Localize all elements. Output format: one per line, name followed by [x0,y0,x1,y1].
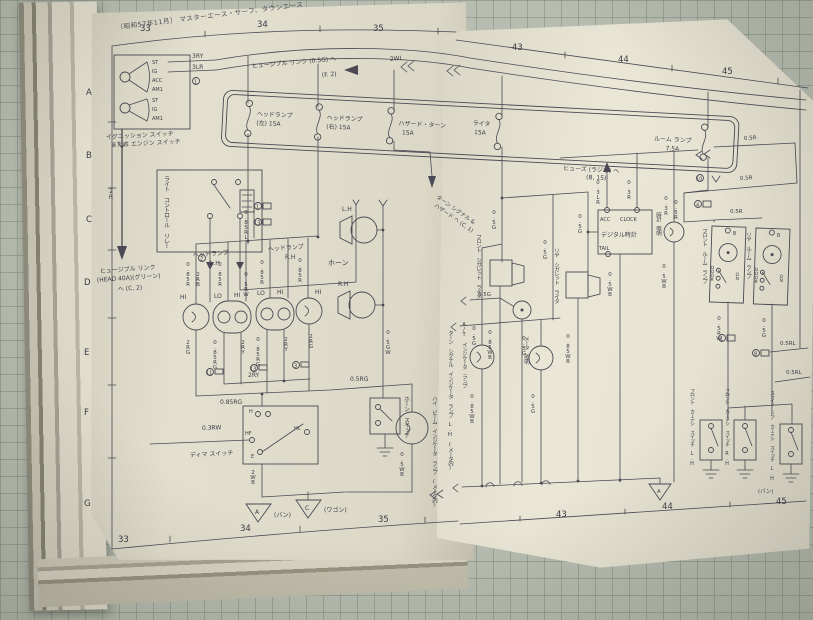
wire-label: 2WL [390,55,404,63]
headlamp-bulb-hi-2: HI [296,289,322,324]
dimmer-switch: H HF HL E 0.3RW ディマ スイッチ 2WB [150,394,318,497]
courtesy-switch-front-lh [700,420,722,478]
indicator-caption: 時計 照明 [655,211,662,238]
grid-col: 33 [140,24,151,34]
switch-position: ON [778,274,784,283]
bottom-bus-right: A [453,478,671,500]
at-indicator-lamp: 0.5G A/T インジケータ ランプ 0.85WB [461,244,502,485]
headlamp-lh-caption: ヘッドランプ [193,250,229,259]
switch-position: ON [734,272,740,281]
wire-label: 2RG [185,340,191,355]
room-lamp-feed: 0.5R 0.5R 0.5R 0.5R 10 4 [673,135,797,222]
wire-label: 0.85RG [255,337,261,367]
wire-label: 0.5RG [350,376,369,383]
lighter-caption: リヤ シガレット ライタ [553,248,560,304]
ground-note: (バン) [274,512,291,519]
wire-label: 0.85R [259,260,265,285]
wire-label: 0.85R [185,262,191,287]
grid-col: 33 [118,535,129,545]
headlamp-lh-caption: L.H [210,260,220,267]
horn-label: L.H [342,206,352,213]
terminal-label: B [733,231,737,237]
wire-label: 0.5WB [607,272,613,297]
wire-label: 0.5G [491,210,497,230]
courtesy-caption: フロント カーテシ スイッチ L.H [689,388,695,466]
fuse-rating: (右) 15A [326,122,352,131]
indicator-caption: A/T インジケータ ランプ [461,322,468,389]
terminal-label: IG [152,107,157,113]
fuse-rating: 15A [474,129,487,137]
terminal-label: IG [152,69,157,75]
grid-col: 34 [257,20,268,30]
horn-rh: R.H [338,281,384,319]
fuse-lighter: ライタ 15A [471,112,502,150]
top-bus: ヒュージブル リンク (0.5G) ヘ (F. 2) 2WL [216,48,806,110]
terminal-label: AM1 [152,116,163,122]
terminal-label: ST [152,98,159,104]
wire-label: 2RY [248,372,260,379]
wire-label: 0.3R [626,180,632,200]
grid-col: 43 [512,43,523,53]
wire-label: 0.85RG [212,340,218,370]
headlamp-rh-caption: ヘッドランプ [268,244,304,253]
grid-row: D [84,278,91,288]
grid-col: 45 [776,497,787,507]
clock-illumination-lamp: 0.3R 時計 照明 0.5WB [655,152,684,482]
switch-position: DOOR [709,265,715,282]
wire-label: 0.3RW [202,424,222,432]
right-edge-wires: 0.5RL 0.5RL 8 [753,90,811,382]
room-lamp-front: B DOOR ON [709,226,746,303]
wire-label: 2RY [240,340,246,355]
courtesy-switches: 0.5RW 0.5G 1 フロント カーテシ スイッチ L.H フロント カーテ… [689,302,802,495]
connector-number: 10 [696,177,702,183]
wire-label: 0.5G [471,326,477,346]
connector-number: 13 [254,221,260,227]
fuse-rating: (左) 15A [256,119,282,128]
bulb-label: HI [315,289,322,296]
wire-label: 0.3LR [595,180,601,205]
terminal-label: E [251,454,254,460]
wire-label: 0.85RL [243,210,249,240]
ground-letter: C [305,505,309,512]
grid-row: E [84,348,89,358]
turn-indicator-caption: ターン シグナル インジケータ ランプ L.H (メータ内) [447,330,454,470]
grid-col: 34 [240,524,251,534]
terminal-label: ST [152,60,159,66]
arrow-left [344,65,358,75]
cigarette-lighter-rear: 0.5G リヤ シガレット ライタ 0.85WB [502,192,600,480]
fuse-hazard-turn: ハザード・ターン 15A [386,107,447,146]
horn-switch: ホーン スイッチ [370,396,410,456]
headlamp-bulb-dual-1: LO HI [213,292,251,333]
note-fusible-link-ref: (F. 2) [322,71,337,79]
grid-col: 35 [378,515,389,525]
wire-label: 0.5G [521,336,527,356]
wire-label: 0.85WB [469,394,475,424]
indicator-caption: ハイ ビーム インジケータ ランプ (メータ内) [431,396,438,507]
ground-letter: A [657,489,661,495]
courtesy-switch-front-rh [734,420,756,478]
connector-number: 3 [294,364,297,370]
terminal-label: ACC [600,217,611,223]
lighter-caption: フロント シガレット ライタ [475,234,482,300]
clock-caption: デジタル時計 [601,231,637,239]
grid-ruler: 33 34 35 43 44 45 33 34 35 43 44 45 A B … [84,20,808,549]
courtesy-caption: スライド ドア カーテシ スイッチ L.H [769,390,775,481]
connector-chevrons [447,65,460,76]
wire-label: 0.3R [663,196,669,216]
wire-label: 0.85WB [487,330,493,360]
wire-label: 0.5R [673,200,679,220]
wire-label: 0.5WB [661,264,667,289]
connector-number: 1 [194,80,197,86]
bulb-label: LO [214,293,222,300]
wire-label: 3RY [192,53,204,60]
grid-col: 43 [556,510,567,520]
terminal-label: B [777,233,781,239]
relay-caption: ライト コントロール リレー [163,176,170,248]
wire-label: 0.85RG [220,399,243,406]
wire-label: 3LR [192,64,203,71]
switch-position: DOOR [753,267,759,284]
grid-col: 35 [373,24,384,34]
room-lamp-rear: B DOOR ON [753,228,790,305]
connector-number: 4 [696,203,699,209]
fuse-rating: 15A [402,129,415,137]
terminal-label: ACC [152,78,163,84]
wire-label: 0.85R [297,258,303,283]
grid-col: 45 [722,67,733,77]
wire-label: 0.5R [740,175,753,182]
bulb-label: HI [277,289,284,296]
ground-note: (ワゴン) [324,506,347,514]
terminal-label: TAIL [598,246,610,252]
courtesy-switch-slide-lh [780,424,802,482]
courtesy-caption: フロント カーテシ スイッチ R.H [724,388,730,466]
grid-row: B [86,151,92,161]
dimmer-caption: ディマ スイッチ [190,449,234,459]
fuse-headlamp-right: ヘッドランプ (右) 15A [314,104,363,143]
wire-label: 0.5G [577,214,583,234]
wire-label: 0.5G [761,318,767,338]
horn-label: R.H [338,281,348,288]
fuse-box: ヘッドランプ (左) 15A ヘッドランプ (右) 15A ハザード・ターン 1… [221,90,739,173]
courtesy-van-note: (バン) [758,488,774,495]
grid-row: G [84,499,91,509]
fuse-room-lamp: ルーム ランプ 7.5A [653,121,708,160]
fuse-headlamp-left: ヘッドランプ (左) 15A [244,100,293,139]
wire-label: 2RY [283,337,289,352]
horn-caption: ホーン [328,259,349,267]
horn-lh: L.H [340,206,384,244]
grid-row: A [86,88,92,98]
bulb-label: HI [234,292,241,299]
wiring-diagram: 33 34 35 43 44 45 33 34 35 43 44 45 A B … [0,0,813,620]
digital-clock: ACC CLOCK デジタル時計 TAIL 0.3LR 0.3R 0.5WB [587,153,652,482]
grid-col: 44 [618,55,629,65]
wire-label: 0.5GW [385,330,391,355]
note-fusible-link: ヒュージブル リンク (0.5G) ヘ [251,55,336,70]
fusible-link-head: 2R ヒュージブル リンク (HEAD 40A)(グリーン) ヘ (C, 2) [97,129,161,293]
wire-label: 0.85WB [565,334,571,364]
wire-label: 0.5WB [399,452,405,477]
wire-label: 0.5G [530,394,536,414]
wire-label: 0.5G [478,292,491,298]
grid-row: F [84,408,89,418]
terminal-label: AM1 [152,87,163,93]
terminal-label: H [249,409,253,415]
terminal-label: CLOCK [620,217,638,223]
fuse-label: ライタ [472,119,490,128]
connector-number: 8 [754,352,757,358]
horn-circuit: L.H ホーン R.H 0.5GW ホーン スイッチ [328,200,410,456]
fuse-label: ヘッドランプ [326,114,362,123]
room-lamp-rear-caption: リヤ ルーム ランプ [745,232,752,279]
wire-label: 2RG [308,334,314,349]
connector-number: 1 [720,337,723,343]
headlamp-bulb-hi-1: HI [180,294,209,330]
room-lamp-front-caption: フロント ルーム ランプ [701,228,708,285]
wire-label: 0.5RL [780,341,797,347]
grid-row: C [86,215,92,225]
note-head-link: ヘ (C, 2) [118,284,143,293]
wire-label: 0.5R [730,209,743,215]
wire-label: 0.5RL [786,370,803,376]
grounds-left: A (バン) C (ワゴン) [246,490,443,522]
headlamps: 0.85R 0.85R 0.85R 0.85R 0.85RL ヘッドランプ L.… [180,208,412,406]
fuse-label: ヘッドランプ [257,111,293,120]
grid-col: 44 [662,502,673,512]
ground-letter: A [255,509,260,516]
terminal-label: HF [245,431,252,437]
connector-number: 1 [256,205,259,211]
wire-label: 2R [108,188,115,200]
wire-label: 0.5G [542,240,548,260]
connector-chevrons [401,61,414,72]
meter-illumination-lamp: 0.5G メータ 照明 0.5G [451,195,560,483]
wire-label: 0.5R [744,135,757,142]
wire-label: 2WB [250,470,256,485]
bulb-label: HI [180,294,187,301]
fuse-label: ハザード・ターン [398,119,446,129]
bulb-label: LO [257,290,265,297]
connector-number: 11 [206,371,212,377]
headlamp-rh-caption: R.H [285,254,295,261]
fuse-label: ルーム ランプ [654,136,692,145]
